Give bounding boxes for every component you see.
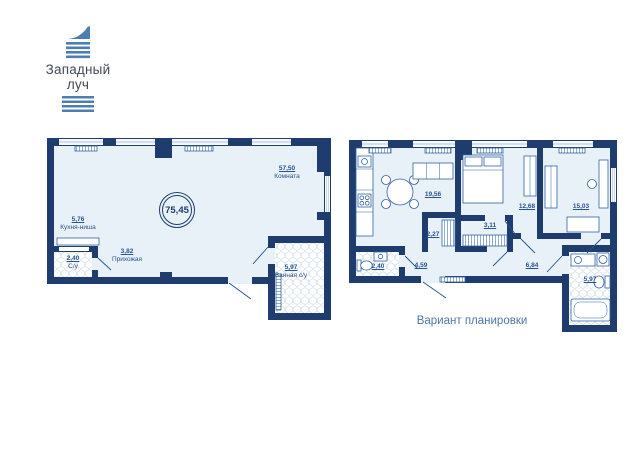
room-name: Комната [257,173,317,181]
room-area: 6,84 [512,262,552,270]
sliding-door-icon [59,247,89,251]
logo: Западный луч [38,26,118,112]
logo-title-line1: Западный [38,63,118,78]
room-area: 2,40 [43,255,103,263]
bathroom-sink-icon [571,254,595,266]
radiator-icon [425,148,451,153]
room-label-corridor: 4,59 [401,262,441,270]
sofa-icon [413,163,453,179]
room-area: 12,68 [507,203,547,211]
stove-icon [358,194,371,207]
radiator-icon [559,148,585,153]
room-area: 5,97 [274,264,308,272]
room-label-bedroom2: 15,03 [561,203,601,211]
floorplan-variant-drawing [347,136,622,336]
wardrobe-icon [524,156,536,196]
radiator-icon [75,146,97,151]
logo-title: Западный луч [38,63,118,93]
room-label-bedroom1: 12,68 [507,203,547,211]
room-label-bathroom: 5,97 [570,276,610,284]
washing-machine-icon [597,253,609,266]
dresser-icon [567,217,599,232]
room-name: Ванная с/у [274,272,308,280]
room-label-wc: 2,40 [358,263,398,271]
room-area: 4,59 [401,262,441,270]
room-name: Кухня-ниша [48,224,108,232]
kitchen-counter-icon [57,238,99,245]
room-area: 57,50 [257,165,317,173]
radiator-icon [440,277,465,282]
double-bed-icon [463,155,503,203]
room-label-komnata: 57,50 Комната [257,165,317,182]
room-label-kitchen-niche: 5,76 Кухня-ниша [48,216,108,233]
logo-stripes-icon [62,96,94,112]
kitchen-sink-icon [358,156,371,167]
logo-title-line2: луч [38,78,118,93]
total-area-badge: 75,45 [159,192,195,228]
radiator-icon [477,148,503,153]
room-label-closet: 2,27 [413,231,453,239]
room-name: Прихожая [97,256,157,264]
entry-door-swing [423,282,446,298]
room-area: 5,76 [48,216,108,224]
room-label-hallway: 3,82 Прихожая [97,248,157,265]
room-area: 15,03 [561,203,601,211]
washbasin-icon [374,252,387,261]
variant-caption: Вариант планировки [372,315,572,327]
room-label-wc: 2,40 С/у [43,255,103,272]
logo-ray-icon [66,26,90,60]
room-area: 2,40 [358,263,398,271]
room-area: 2,27 [413,231,453,239]
apartment-floorplans-page: Западный луч [0,0,644,470]
room-area: 5,97 [570,276,610,284]
room-label-hall: 6,84 [512,262,552,270]
room-label-living: 19,56 [413,191,453,199]
room-label-bathroom: 5,97 Ванная с/у [274,264,308,281]
radiator-icon [185,146,213,151]
entry-opening [228,277,252,284]
radiator-icon [369,148,391,153]
entry-door-swing [229,283,251,299]
room-area: 3,82 [97,248,157,256]
bathtub-icon [571,299,610,321]
room-label-hall-small: 3,11 [470,222,510,230]
total-area-value: 75,45 [162,195,192,225]
room-area: 19,56 [413,191,453,199]
room-name: С/у [43,263,103,271]
closet-icon [463,235,507,246]
wardrobe-icon [545,166,557,208]
room-area: 3,11 [470,222,510,230]
